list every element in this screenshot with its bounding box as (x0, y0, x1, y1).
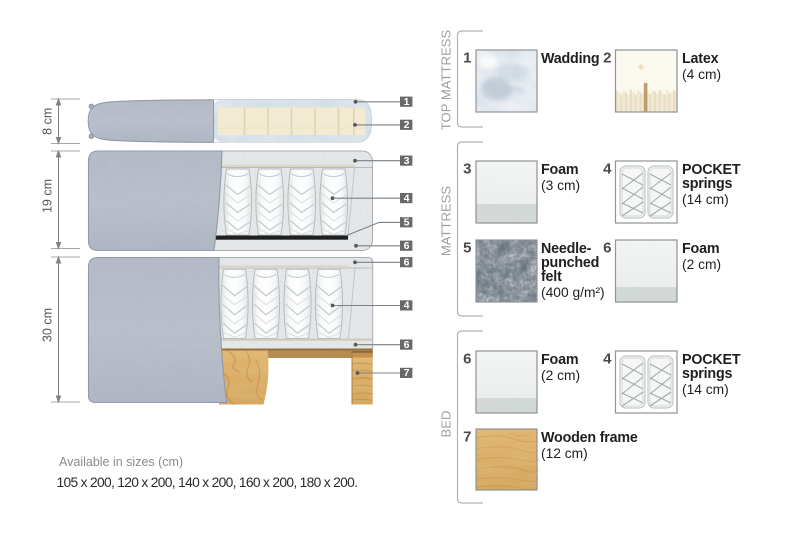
svg-text:springs: springs (682, 366, 732, 382)
svg-text:7: 7 (463, 429, 471, 446)
svg-text:(12 cm): (12 cm) (541, 446, 588, 461)
svg-text:4: 4 (603, 351, 612, 368)
svg-text:(2 cm): (2 cm) (541, 368, 580, 383)
svg-text:Foam: Foam (541, 162, 578, 178)
svg-text:4: 4 (603, 161, 612, 178)
svg-text:3: 3 (404, 155, 410, 167)
svg-text:(3 cm): (3 cm) (541, 178, 580, 193)
svg-text:19 cm: 19 cm (41, 179, 55, 213)
svg-text:Wooden frame: Wooden frame (541, 430, 638, 446)
svg-text:BED: BED (439, 411, 454, 438)
svg-text:4: 4 (404, 300, 410, 312)
svg-text:TOP MATTRESS: TOP MATTRESS (439, 30, 454, 131)
svg-text:3: 3 (463, 161, 471, 178)
svg-text:5: 5 (404, 217, 410, 229)
svg-text:6: 6 (404, 257, 410, 269)
svg-text:(4 cm): (4 cm) (682, 67, 721, 82)
svg-text:(14 cm): (14 cm) (682, 192, 729, 207)
svg-text:5: 5 (463, 240, 471, 257)
svg-text:Wadding: Wadding (541, 51, 599, 67)
svg-text:springs: springs (682, 176, 732, 192)
svg-text:6: 6 (404, 339, 410, 351)
svg-text:6: 6 (603, 240, 611, 257)
svg-text:6: 6 (404, 240, 410, 252)
svg-text:(2 cm): (2 cm) (682, 257, 721, 272)
svg-text:felt: felt (541, 269, 562, 285)
svg-text:Foam: Foam (682, 241, 719, 257)
svg-text:(14 cm): (14 cm) (682, 382, 729, 397)
svg-text:7: 7 (404, 367, 410, 379)
svg-text:30 cm: 30 cm (41, 308, 55, 342)
svg-text:2: 2 (404, 119, 410, 131)
svg-text:MATTRESS: MATTRESS (439, 186, 454, 257)
svg-text:1: 1 (404, 96, 410, 108)
svg-text:(400 g/m²): (400 g/m²) (541, 285, 605, 300)
svg-text:6: 6 (463, 351, 471, 368)
svg-text:Available in sizes (cm): Available in sizes (cm) (59, 455, 183, 469)
svg-text:Foam: Foam (541, 352, 578, 368)
svg-text:2: 2 (603, 50, 611, 67)
svg-text:4: 4 (404, 192, 410, 204)
svg-text:1: 1 (463, 50, 471, 67)
svg-text:Latex: Latex (682, 51, 719, 67)
svg-text:8 cm: 8 cm (41, 108, 55, 135)
svg-text:105 x 200, 120 x 200, 140 x 20: 105 x 200, 120 x 200, 140 x 200, 160 x 2… (57, 475, 358, 490)
